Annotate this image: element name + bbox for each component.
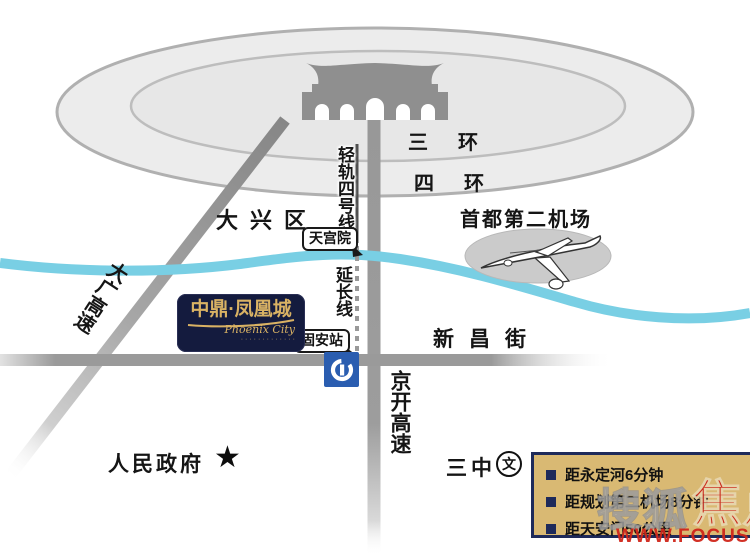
tiananmen-gate-icon (302, 63, 448, 120)
light-rail-line4-label: 轻轨四号线 (335, 146, 354, 231)
logo-name-cn: 中鼎·凤凰城 (190, 300, 291, 320)
subway-logo-icon (324, 352, 359, 387)
ring4-label: 四环 (414, 167, 514, 196)
logo-name-en: Phoenix City (225, 324, 296, 336)
logo-tagline: ············· (241, 336, 297, 344)
middle-school-label: 三中 (446, 452, 496, 482)
bullet-square-icon (546, 524, 556, 534)
watermark-url: WWW.FOCUS. (616, 526, 750, 548)
xinchang-street-label: 新昌街 (433, 323, 541, 353)
government-star-icon: ★ (214, 443, 241, 473)
airport-label: 首都第二机场 (460, 203, 592, 232)
school-symbol-icon: 文 (496, 451, 522, 477)
extension-line-label: 延长线 (333, 266, 352, 317)
phoenix-city-logo: 中鼎·凤凰城 Phoenix City ············· (177, 294, 305, 352)
ring3-label: 三环 (408, 126, 508, 155)
jingkai-expressway-label: 京开高速 (388, 370, 411, 454)
tiangongyuan-station-box: 天宫院 (302, 227, 358, 251)
bullet-square-icon (546, 470, 556, 480)
location-map: 三环 四环 大兴区 首都第二机场 轻轨四号线 延长线 天宫院 固安站 新昌街 京… (0, 0, 750, 560)
government-label: 人民政府 (108, 448, 204, 478)
bullet-square-icon (546, 497, 556, 507)
